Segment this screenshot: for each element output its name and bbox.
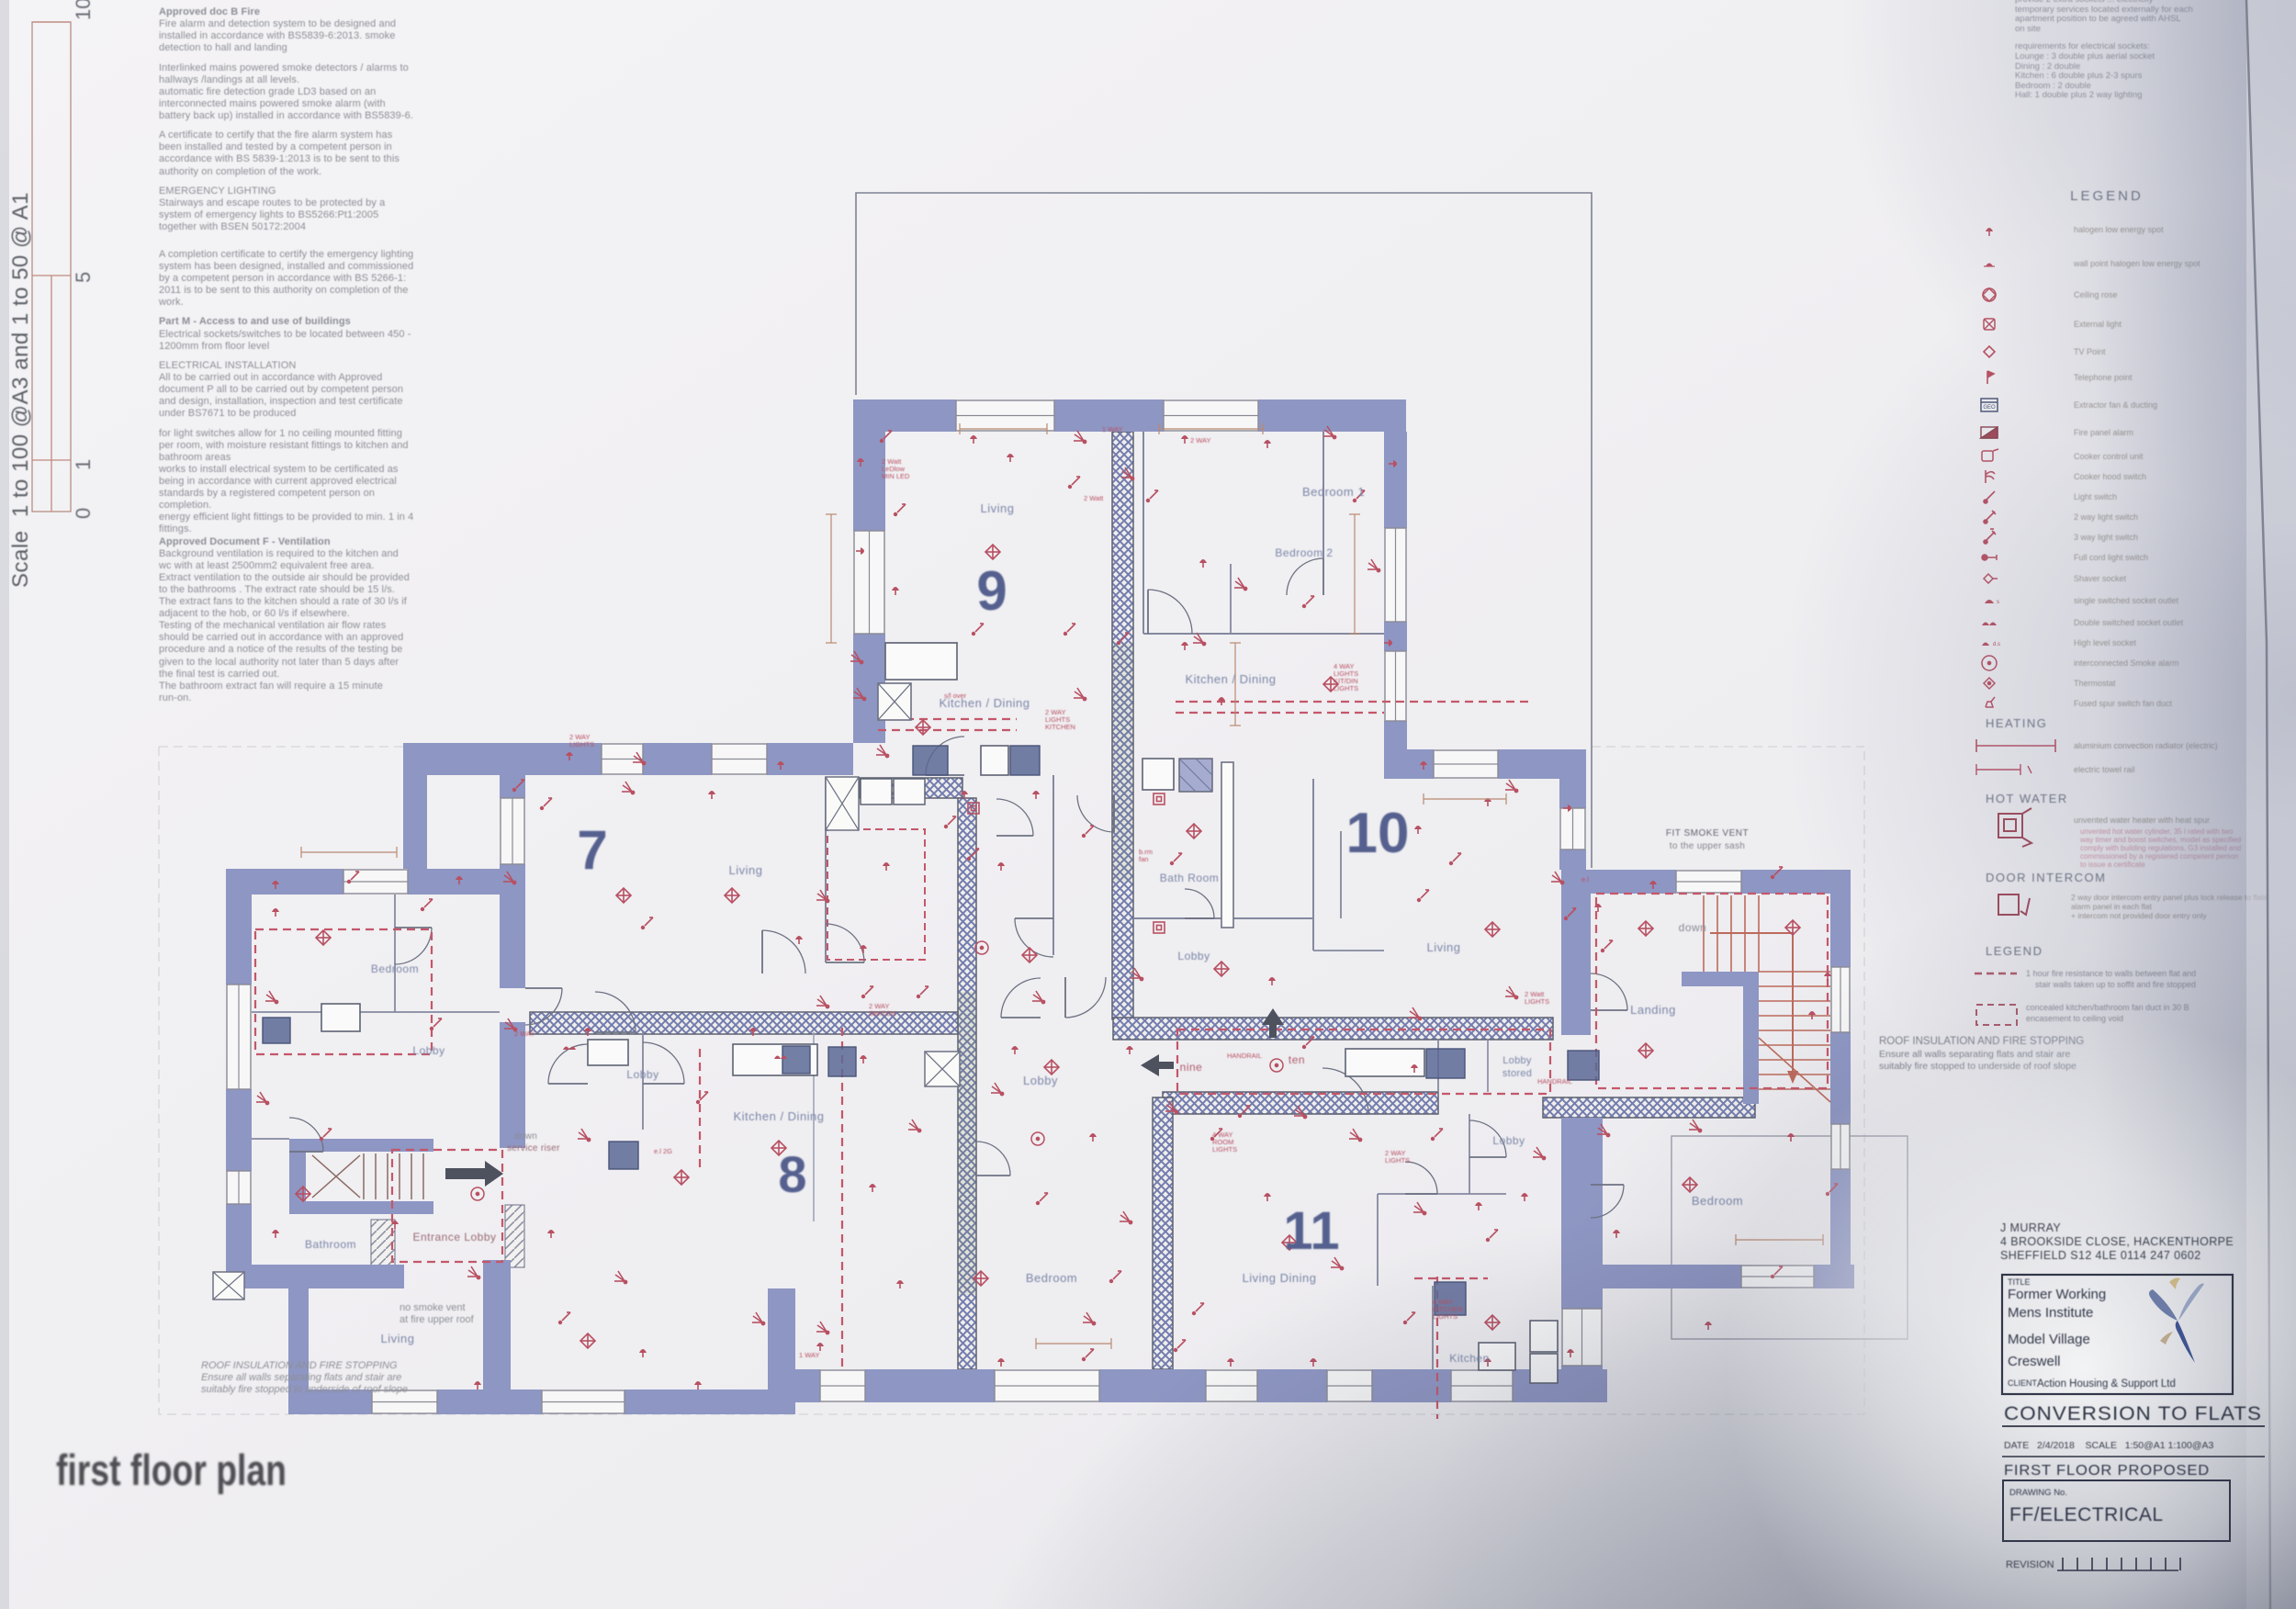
svg-text:REVISION: REVISION (2006, 1559, 2054, 1570)
svg-text:DRAWING No.: DRAWING No. (2009, 1488, 2067, 1498)
svg-text:CLIENT: CLIENT (2008, 1378, 2038, 1388)
svg-text:CONVERSION TO FLATS: CONVERSION TO FLATS (2004, 1403, 2262, 1424)
svg-text:Action Housing & Support Ltd: Action Housing & Support Ltd (2037, 1378, 2176, 1390)
svg-text:DATE 2/4/2018 SCALE 1:5: DATE 2/4/2018 SCALE 1:50@A1 1:100@A3 (2004, 1440, 2213, 1451)
svg-text:J MURRAY: J MURRAY (2000, 1221, 2061, 1234)
svg-text:4 BROOKSIDE CLOSE, HACKENTHORP: 4 BROOKSIDE CLOSE, HACKENTHORPE (2000, 1235, 2234, 1248)
svg-text:Former Working: Former Working (2008, 1287, 2106, 1302)
svg-text:SHEFFIELD S12 4LE 0114 247 06: SHEFFIELD S12 4LE 0114 247 0602 (2000, 1249, 2201, 1262)
svg-text:Creswell: Creswell (2008, 1354, 2061, 1369)
svg-text:Mens Institute: Mens Institute (2008, 1305, 2093, 1321)
svg-text:TITLE: TITLE (2008, 1277, 2031, 1287)
svg-text:FF/ELECTRICAL: FF/ELECTRICAL (2009, 1504, 2164, 1525)
svg-text:Model Village: Model Village (2008, 1332, 2090, 1347)
svg-text:FIRST FLOOR PROPOSED: FIRST FLOOR PROPOSED (2004, 1463, 2210, 1479)
